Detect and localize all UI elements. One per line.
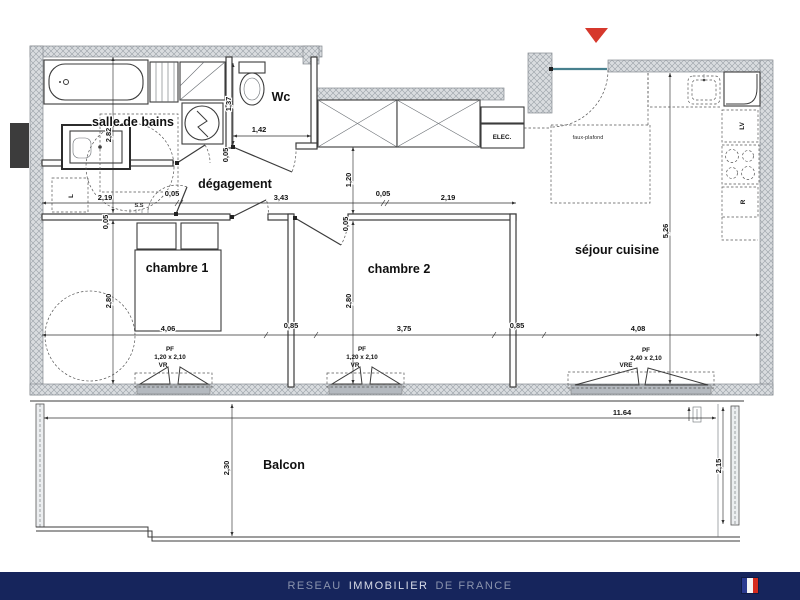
- entrance-door: [549, 67, 608, 127]
- bathroom-inner-door: [175, 145, 210, 165]
- window-chambre2: PF 1,20 x 2,10 VR: [327, 346, 404, 394]
- room-label-balcon: Balcon: [263, 458, 305, 472]
- dim-label: 0,05: [341, 217, 350, 232]
- room-label-salle-de-bains: salle de bains: [92, 115, 174, 129]
- towel-panel: [150, 62, 178, 102]
- balcony: [30, 401, 744, 541]
- fridge: R: [722, 187, 758, 217]
- window-shutter-label: VR: [159, 362, 168, 369]
- dim-label: 5,26: [661, 224, 670, 239]
- faux-plafond-label: faux-plafond: [573, 135, 604, 141]
- towel-rail-label: S.S: [134, 203, 143, 209]
- window-code-label: PF: [642, 347, 650, 354]
- counter-end: [722, 217, 758, 240]
- elec-label: ELEC.: [493, 134, 512, 141]
- chambre1-door: [230, 199, 268, 219]
- dim-label: 2,19: [441, 193, 456, 202]
- dim-label: 1,37: [224, 97, 233, 112]
- dim-label: 0,85: [284, 321, 299, 330]
- window-chambre1: PF 1,20 x 2,10 VR: [135, 346, 212, 394]
- dim-label: 3,43: [274, 193, 289, 202]
- washbasin: [62, 125, 130, 169]
- dim-label: 1,42: [252, 125, 267, 134]
- dim-label: 2,80: [344, 294, 353, 309]
- room-label-chambre1: chambre 1: [146, 261, 209, 275]
- corner-cabinet: [724, 72, 760, 106]
- faux-plafond-zone: faux-plafond: [551, 73, 650, 203]
- room-label-wc: Wc: [272, 90, 291, 104]
- brand-immobilier: IMMOBILIER: [349, 580, 429, 592]
- washer-slot: L: [52, 178, 88, 212]
- kitchen-sink: [688, 74, 720, 104]
- dim-label: 0,05: [221, 148, 230, 163]
- window-shutter-label: VRE: [620, 362, 633, 369]
- window-sejour: PF 2,40 x 2,10 VRE: [568, 347, 714, 394]
- bed: [135, 223, 221, 331]
- dishwasher-label: LV: [739, 121, 746, 129]
- floor-plan-page: ELEC. L S.S: [0, 0, 800, 600]
- chambre2-door: [293, 216, 348, 245]
- kitchen: LV R: [648, 72, 760, 240]
- dim-label: 2,15: [714, 459, 723, 474]
- dim-label: 0,05: [165, 189, 180, 198]
- dim-label: 0,85: [510, 321, 525, 330]
- room-label-degagement: dégagement: [198, 177, 272, 191]
- floor-plan-drawing: ELEC. L S.S: [0, 0, 800, 600]
- dim-label: 2,30: [222, 461, 231, 476]
- dim-label: 3,75: [397, 324, 412, 333]
- washer-slot-label: L: [68, 194, 75, 198]
- brand-text: RESEAU IMMOBILIER DE FRANCE: [287, 580, 512, 592]
- washing-machine: [182, 103, 223, 144]
- france-flag-icon: [742, 578, 758, 593]
- footer-bar: RESEAU IMMOBILIER DE FRANCE: [0, 572, 800, 600]
- dim-label: 0,05: [376, 189, 391, 198]
- bathtub: [44, 60, 148, 104]
- room-label-chambre2: chambre 2: [368, 262, 431, 276]
- closets: [318, 100, 480, 147]
- room-label-sejour-cuisine: séjour cuisine: [575, 243, 659, 257]
- toilet: [239, 62, 265, 105]
- wc-door: [231, 145, 296, 172]
- window-size-label: 2,40 x 2,10: [630, 355, 662, 362]
- window-code-label: PF: [166, 346, 174, 353]
- fridge-label: R: [740, 199, 747, 204]
- window-shutter-label: VR: [351, 362, 360, 369]
- dim-label: 2,19: [98, 193, 113, 202]
- downspout: [689, 407, 701, 422]
- entrance-arrow-marker: [585, 28, 608, 43]
- dim-label: 0,05: [101, 215, 110, 230]
- dim-label: 4,06: [161, 324, 176, 333]
- window-size-label: 1,20 x 2,10: [154, 354, 186, 361]
- duct-corner-unit: [180, 62, 225, 100]
- dim-label: 2,82: [104, 128, 113, 143]
- dim-label: 2,80: [104, 294, 113, 309]
- counter-edge: [648, 73, 722, 107]
- towel-rail: S.S: [130, 203, 148, 213]
- window-code-label: PF: [358, 346, 366, 353]
- exterior-pilaster: [10, 123, 29, 168]
- dim-label: 1,20: [344, 173, 353, 188]
- brand-de-france: DE FRANCE: [435, 580, 512, 592]
- window-size-label: 1,20 x 2,10: [346, 354, 378, 361]
- dim-label: 4,08: [631, 324, 646, 333]
- brand-reseau: RESEAU: [287, 580, 341, 592]
- dishwasher: LV: [722, 110, 758, 142]
- dim-label: 11.64: [613, 408, 632, 417]
- cooktop: [722, 145, 759, 184]
